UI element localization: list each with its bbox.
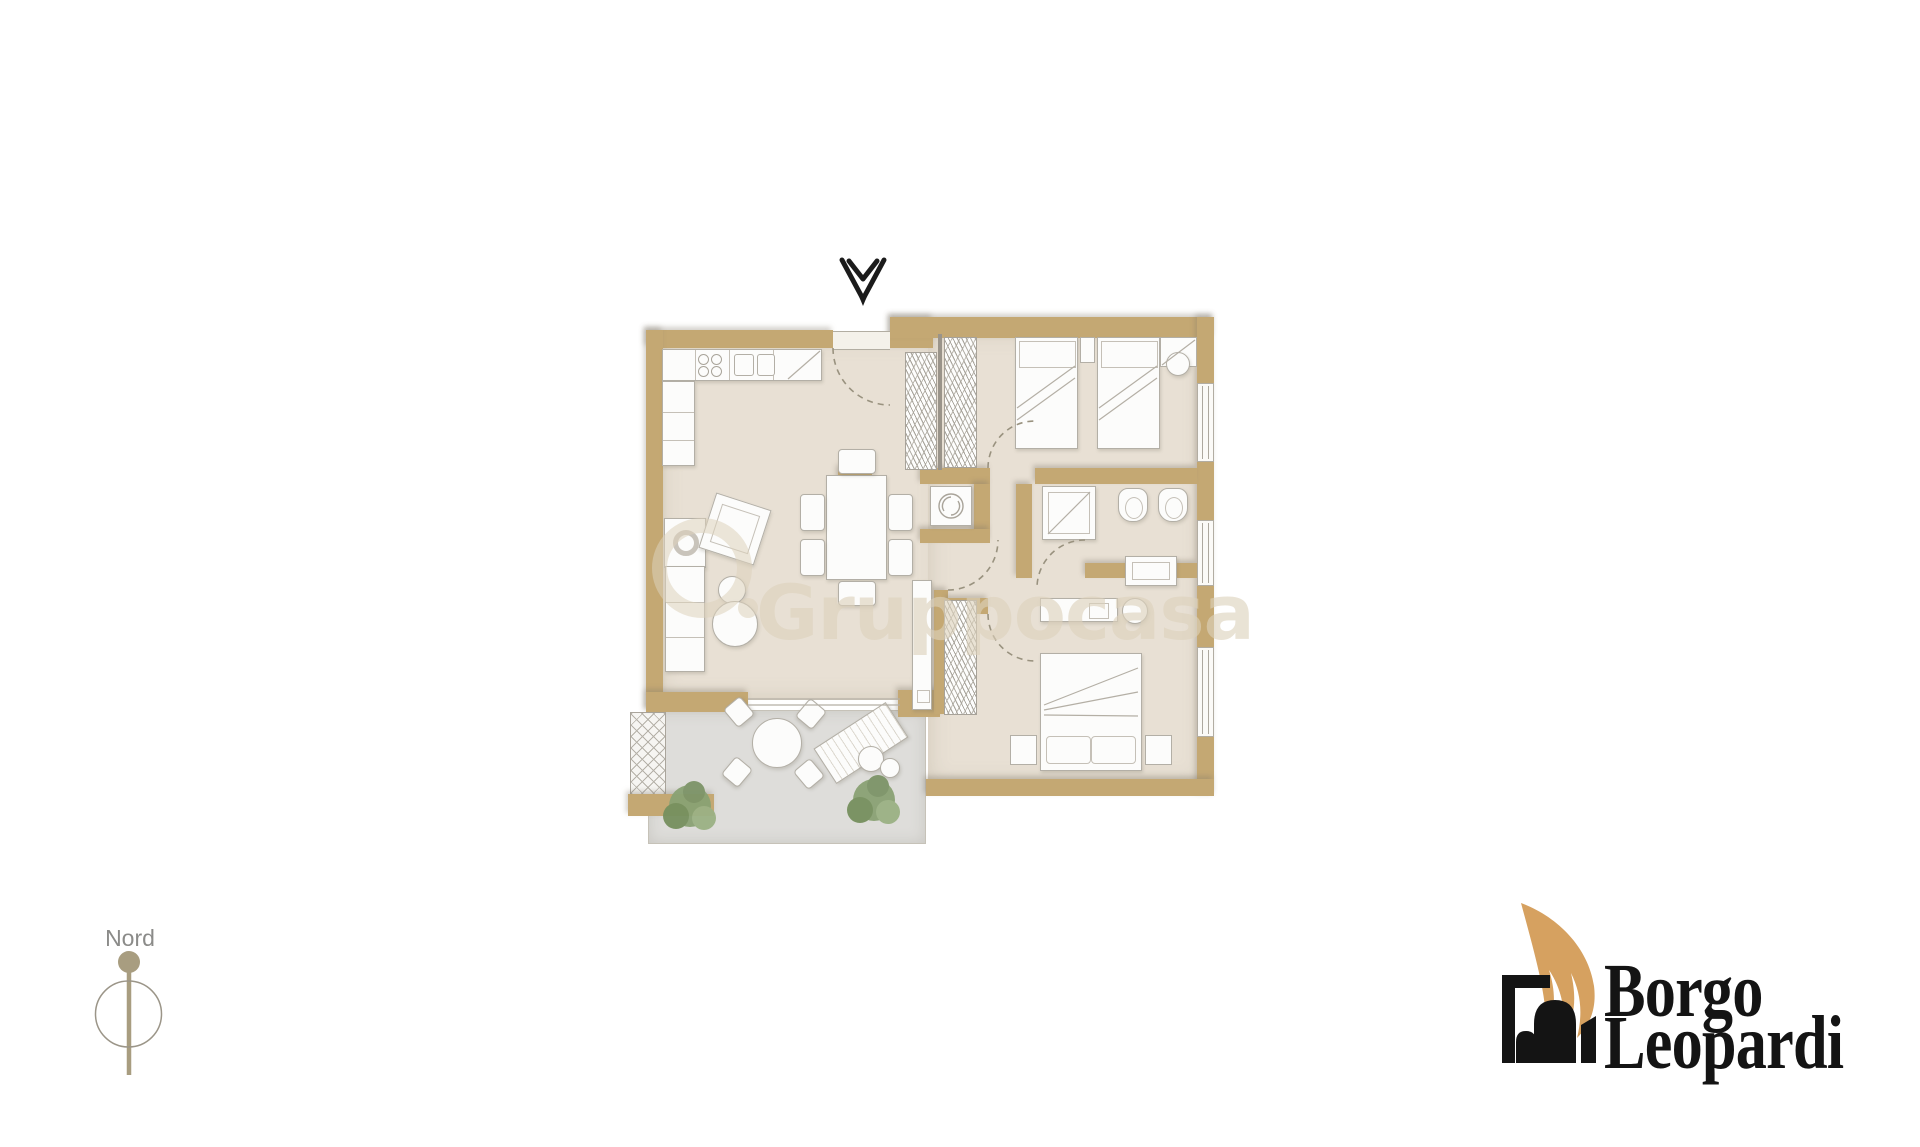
wall-bedroom1-bottom-right	[1035, 468, 1197, 484]
shower	[1042, 486, 1096, 540]
wall-hall-bedroom1-divider	[938, 334, 942, 470]
wall-terrace-corner	[628, 794, 714, 816]
kitchen-sink-icon	[757, 354, 775, 376]
wall-top-left	[646, 330, 833, 348]
wall-bottom	[926, 779, 1214, 796]
wall-tv-dresser	[1125, 556, 1177, 586]
brand-name-line2: Leopardi	[1604, 1014, 1843, 1072]
arch-and-feather-icon	[1502, 903, 1596, 1063]
nightstand	[1080, 337, 1095, 363]
dining-table	[826, 475, 887, 580]
single-bed	[1097, 337, 1160, 449]
window-twin-bedroom	[1197, 383, 1214, 462]
dining-chair	[838, 449, 876, 474]
nightstand	[1145, 735, 1172, 765]
kitchen-hob-icon	[696, 352, 724, 378]
washing-machine	[930, 486, 972, 526]
entrance-direction-arrow-icon	[842, 260, 884, 306]
nightstand	[1010, 735, 1037, 765]
wall-left	[646, 330, 663, 712]
entrance-threshold	[833, 331, 890, 350]
bedside-lamp-icon	[1166, 352, 1190, 376]
gruppocasa-ring-icon	[652, 518, 752, 618]
watermark: Gruppocasa	[756, 568, 1254, 657]
hallway-wardrobe	[905, 352, 937, 470]
kitchen-counter-left	[662, 381, 695, 466]
compass-label: Nord	[60, 925, 200, 952]
wall-laundry-bottom	[920, 529, 990, 543]
wall-bath-left	[1016, 484, 1032, 578]
double-bed	[1040, 653, 1142, 771]
terrace-side-table	[880, 758, 900, 778]
kitchen-sink-icon	[734, 354, 754, 376]
wall-bedroom1-bottom-left	[920, 468, 990, 484]
dining-chair	[800, 494, 825, 531]
window-master-bedroom	[1197, 647, 1214, 737]
terrace-round-table	[752, 718, 802, 768]
single-bed	[1015, 337, 1078, 449]
floor-plan-page: { "compass": { "label": "Nord", "icon": …	[0, 0, 1920, 1147]
kitchen-counter-divider	[729, 350, 730, 380]
dining-chair	[888, 494, 913, 531]
gruppocasa-ring-dot	[738, 598, 758, 618]
toilet	[1118, 488, 1148, 522]
bidet	[1158, 488, 1188, 522]
north-needle-icon	[96, 951, 162, 1075]
twin-bedroom-wardrobe	[944, 337, 977, 468]
